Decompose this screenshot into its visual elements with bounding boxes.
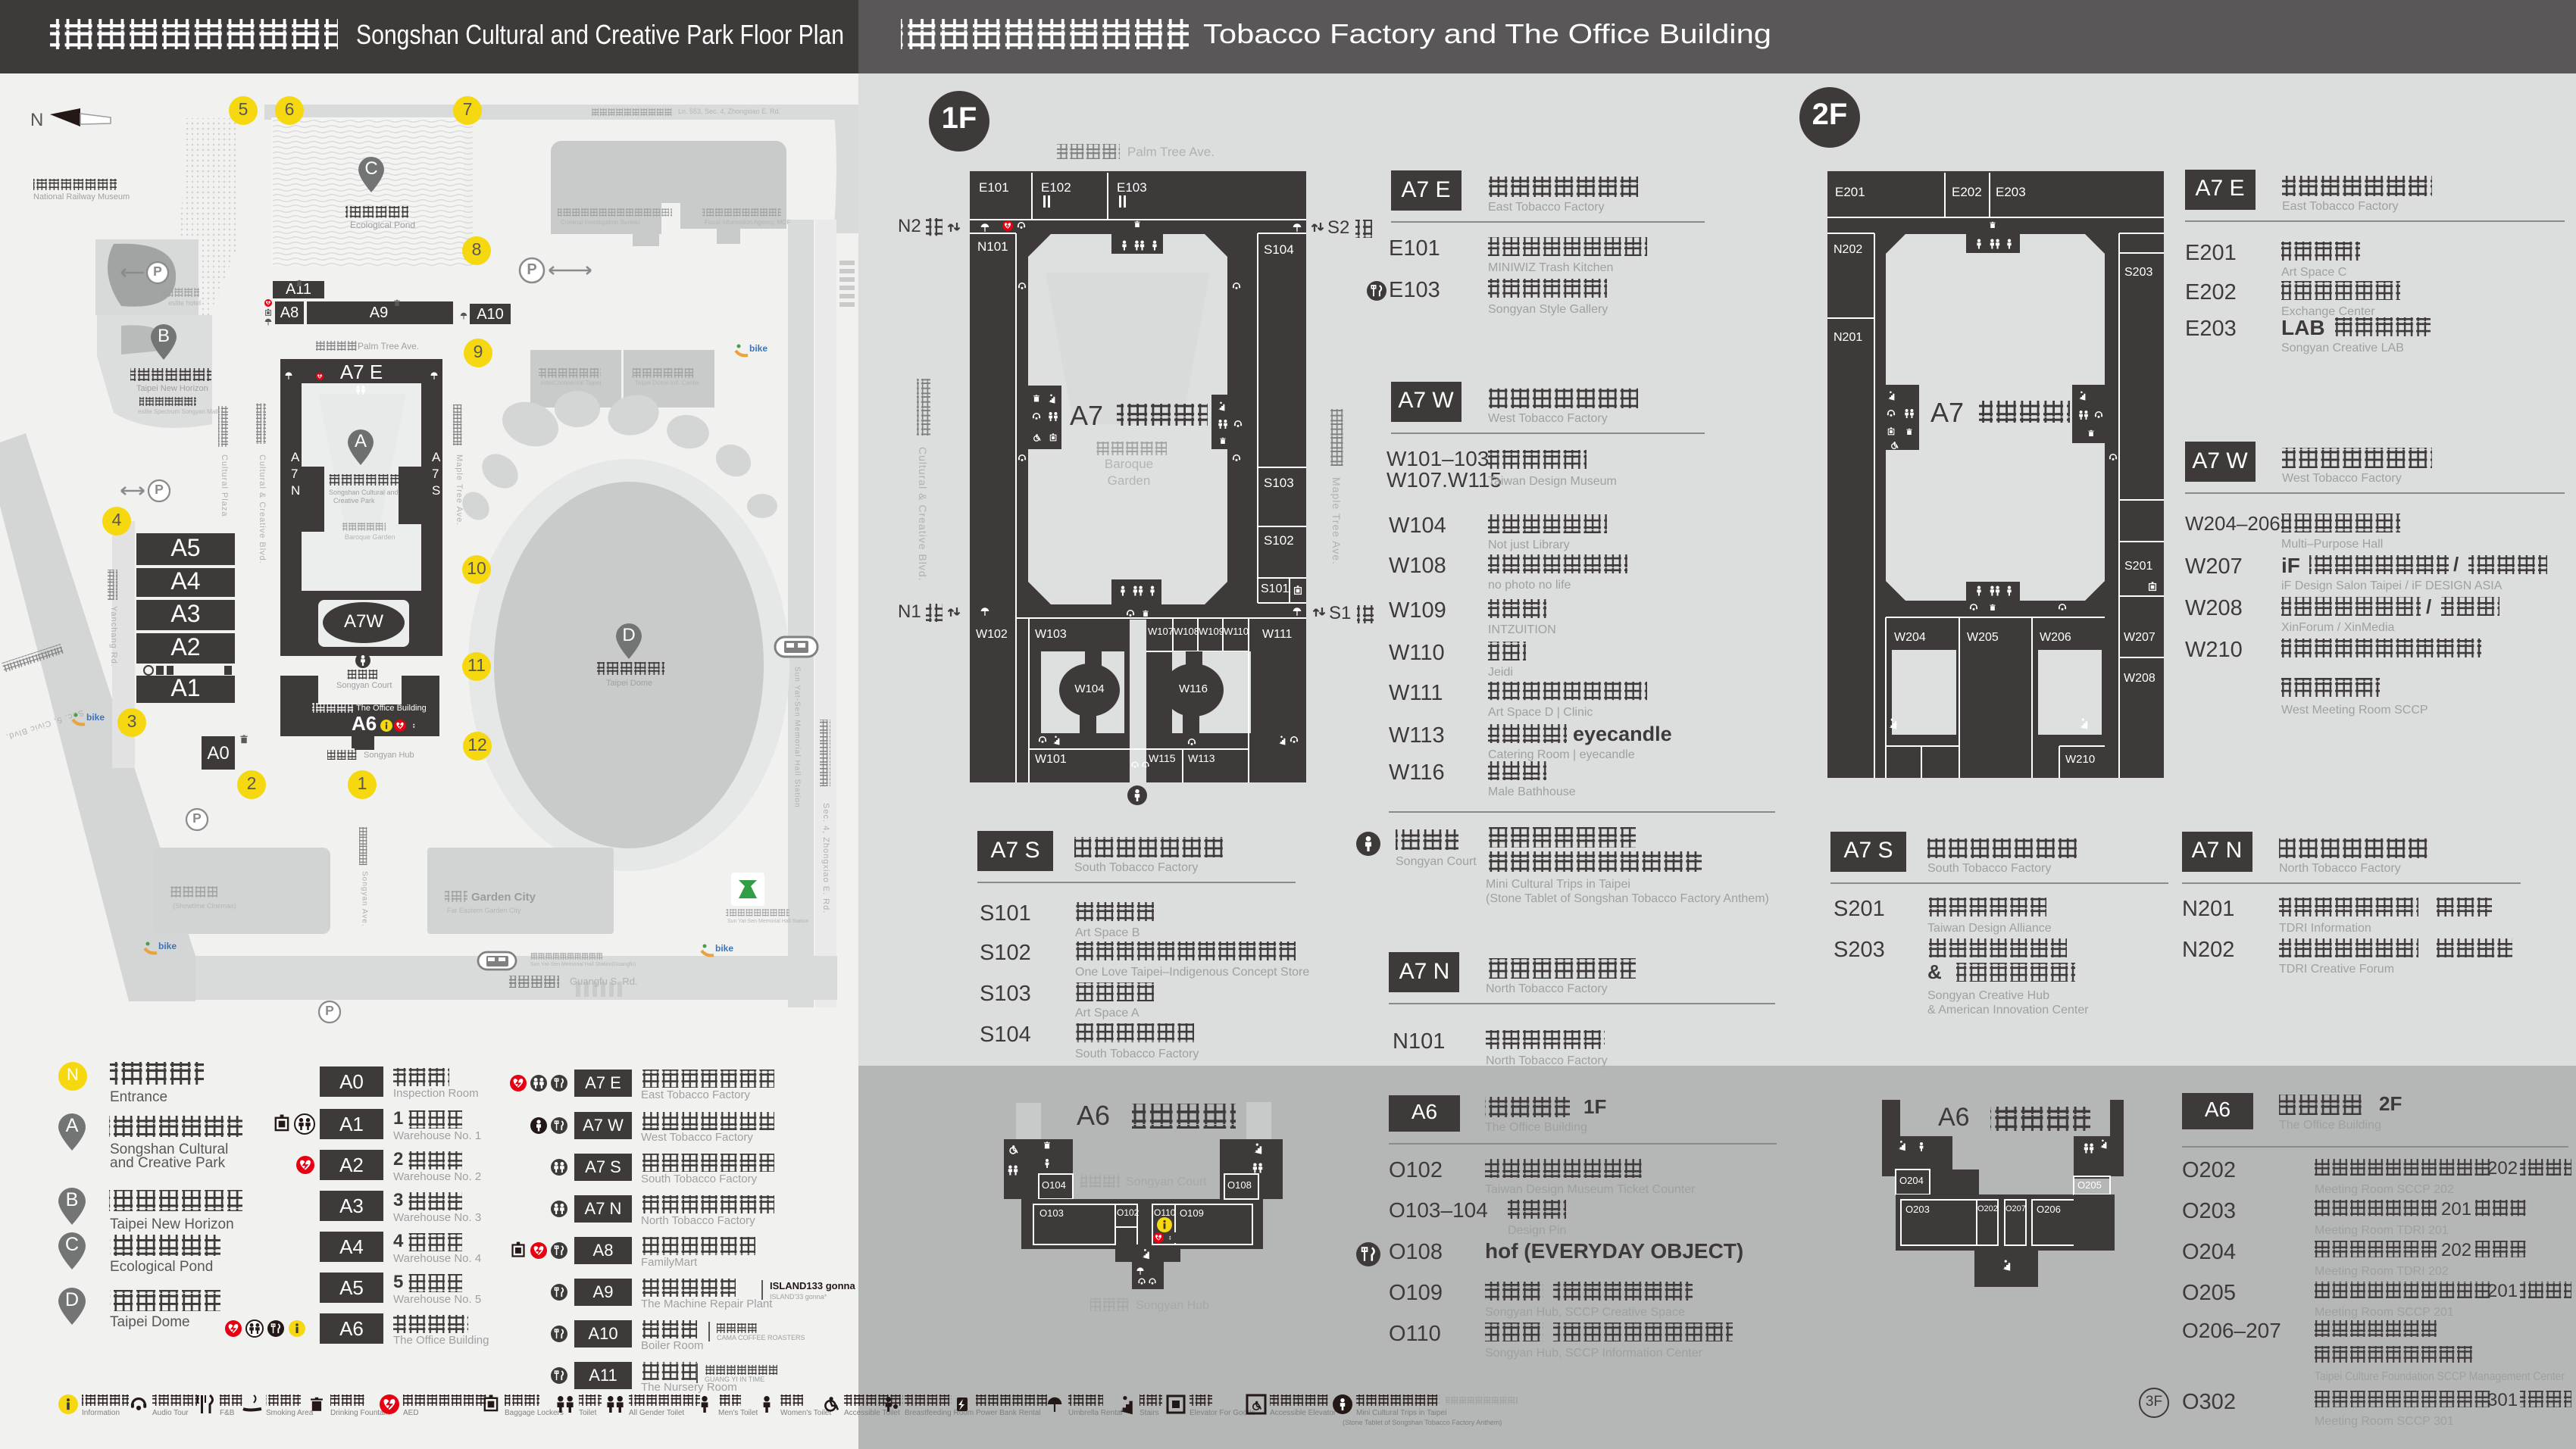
svg-text:E201: E201 [2185,241,2237,265]
svg-text:W113: W113 [1389,723,1445,748]
svg-text:7: 7 [432,467,439,481]
svg-text:O108: O108 [1389,1240,1443,1264]
svg-text:hof (EVERYDAY OBJECT): hof (EVERYDAY OBJECT) [1485,1239,1743,1263]
svg-text:N: N [291,483,300,498]
svg-text:W204: W204 [1894,631,1926,644]
svg-text:InterContinental Taipei: InterContinental Taipei [541,379,602,386]
svg-text:Meeting Room SCCP 202: Meeting Room SCCP 202 [2315,1183,2454,1196]
svg-text:A5: A5 [339,1276,364,1299]
svg-text:Cultural & Creative Blvd.: Cultural & Creative Blvd. [258,454,267,564]
svg-text:East Tobacco Factory: East Tobacco Factory [641,1088,750,1101]
svg-text:(Showtime Cinemas): (Showtime Cinemas) [173,902,236,910]
svg-text:Taiwan Design Alliance: Taiwan Design Alliance [1927,922,2052,935]
svg-text:A1: A1 [339,1113,364,1135]
svg-text:E101: E101 [1389,236,1440,261]
svg-text:3F: 3F [2146,1394,2162,1410]
svg-text:A7 N: A7 N [585,1199,622,1218]
svg-text:O109: O109 [1180,1207,1204,1219]
svg-text:6: 6 [285,99,295,119]
svg-text:Sun Yat-Sen Memorial Hall Stat: Sun Yat-Sen Memorial Hall Station [793,667,802,808]
svg-text:S1: S1 [1329,603,1351,623]
svg-text:W210: W210 [2185,638,2243,662]
svg-text:8: 8 [472,239,482,259]
svg-text:Palm Tree Ave.: Palm Tree Ave. [1127,145,1215,159]
svg-text:Cultural Plaza: Cultural Plaza [220,454,229,517]
svg-text:10: 10 [467,558,486,578]
svg-text:W115: W115 [1149,752,1176,764]
svg-text:Men's Toilet: Men's Toilet [718,1409,758,1417]
svg-text:West Meeting Room SCCP: West Meeting Room SCCP [2281,704,2428,717]
svg-text:Mini Cultural Trips in Taipei: Mini Cultural Trips in Taipei [1356,1409,1446,1417]
svg-text:Taiwan Design Museum: Taiwan Design Museum [1488,475,1617,488]
svg-text:A4: A4 [170,567,200,595]
svg-text:E101: E101 [979,180,1009,195]
svg-text:W111: W111 [1389,681,1443,705]
svg-text:5: 5 [239,99,249,119]
svg-text:Women's Toilet: Women's Toilet [780,1409,831,1417]
svg-text:Sun Yat-Sen Memorial Hall Stat: Sun Yat-Sen Memorial Hall Station(Guangf… [530,962,636,967]
svg-text:S103: S103 [980,982,1031,1006]
svg-text:A7 W: A7 W [583,1116,624,1135]
svg-text:3: 3 [393,1190,403,1210]
svg-text:O205: O205 [2077,1179,2102,1191]
svg-text:A: A [355,431,367,451]
svg-text:N201: N201 [1834,331,1862,344]
svg-text:7: 7 [291,467,298,481]
svg-text:1F: 1F [942,101,977,135]
svg-text:9: 9 [474,342,483,361]
svg-text:North Tobacco Factory: North Tobacco Factory [641,1214,755,1227]
svg-text:S203: S203 [2124,266,2152,279]
svg-text:A7 S: A7 S [990,838,1039,863]
svg-text:A0: A0 [207,743,229,764]
svg-text:Ln. 553, Sec. 4, Zhongxiao E.: Ln. 553, Sec. 4, Zhongxiao E. Rd. [678,108,780,115]
svg-text:202: 202 [2441,1240,2471,1260]
svg-text:S104: S104 [1264,242,1294,257]
svg-text:S104: S104 [980,1023,1031,1047]
svg-text:A0: A0 [339,1070,364,1093]
svg-text:Art Space B: Art Space B [1075,926,1140,939]
svg-text:S2: S2 [1327,217,1349,238]
svg-text:D: D [622,625,635,645]
svg-text:1F: 1F [1583,1095,1606,1118]
svg-text:S101: S101 [1261,582,1289,595]
svg-text:Sec. 4, Zhongxiao E. Rd.: Sec. 4, Zhongxiao E. Rd. [821,803,830,913]
svg-text:Songyan Court: Songyan Court [336,681,392,690]
svg-text:South Tobacco Factory: South Tobacco Factory [641,1173,758,1185]
svg-text:Maple Tree Ave.: Maple Tree Ave. [1330,477,1343,565]
svg-text:bike: bike [158,941,177,951]
svg-text:F&B: F&B [220,1409,235,1417]
svg-text:1: 1 [358,773,367,793]
svg-text:W208: W208 [2185,596,2243,620]
svg-text:W107: W107 [1148,626,1174,637]
svg-text:Taipei Dome: Taipei Dome [110,1314,190,1330]
svg-text:A9: A9 [593,1282,614,1301]
svg-text:201: 201 [2487,1281,2518,1301]
svg-text:A3: A3 [170,600,200,627]
svg-text:ISLAND'33 gonna*: ISLAND'33 gonna* [770,1293,827,1301]
svg-text:12: 12 [467,735,487,754]
svg-text:O204: O204 [1899,1175,1924,1186]
svg-text:A6: A6 [339,1317,364,1340]
svg-text:W207: W207 [2185,554,2243,579]
svg-text:W109: W109 [1389,598,1446,623]
svg-text:Taipei Culture Foundation SCCP: Taipei Culture Foundation SCCP Managemen… [2315,1370,2565,1383]
svg-text:Art Space C: Art Space C [2281,266,2346,279]
svg-text:Ecological Pond: Ecological Pond [110,1259,213,1275]
svg-text:Smoking Area: Smoking Area [266,1409,314,1417]
svg-text:Songyan Hub: Songyan Hub [364,751,414,760]
svg-text:East Tobacco Factory: East Tobacco Factory [1488,201,1605,214]
svg-text:Toilet: Toilet [579,1409,597,1417]
svg-text:E203: E203 [1996,185,2026,199]
svg-text:LAB: LAB [2281,316,2325,339]
svg-text:N1: N1 [898,601,921,622]
svg-text:W103: W103 [1035,628,1067,641]
svg-text:Power Bank Rental: Power Bank Rental [976,1409,1041,1417]
svg-text:202: 202 [2487,1158,2518,1179]
svg-text:W210: W210 [2065,753,2095,766]
svg-text:Tobacco Factory and The Office: Tobacco Factory and The Office Building [1203,18,1771,49]
svg-text:O103–104: O103–104 [1389,1198,1488,1222]
svg-text:W205: W205 [1967,631,1999,644]
svg-text:W116: W116 [1389,760,1445,785]
svg-text:Jeidi: Jeidi [1488,666,1513,679]
svg-text:Songyan Court: Songyan Court [1396,855,1477,868]
svg-text:A7 W: A7 W [2192,448,2248,473]
svg-text:ISLAND133 gonna: ISLAND133 gonna [770,1280,855,1291]
svg-text:O204: O204 [2182,1240,2236,1264]
svg-text:Art Space A: Art Space A [1075,1007,1140,1020]
svg-text:/: / [2453,553,2459,576]
svg-text:Warehouse No. 1: Warehouse No. 1 [393,1129,481,1142]
svg-text:O202: O202 [2182,1158,2236,1182]
svg-text:O110: O110 [1389,1322,1441,1346]
svg-text:A11: A11 [589,1366,617,1385]
svg-text:O302: O302 [2182,1390,2236,1414]
svg-text:Mini Cultural Trips in Taipei: Mini Cultural Trips in Taipei [1486,878,1630,891]
svg-text:2F: 2F [2379,1092,2402,1115]
svg-text:eslite Spectrum Songyan Mall: eslite Spectrum Songyan Mall [138,408,218,415]
svg-text:A7 N: A7 N [2192,838,2243,863]
svg-text:MINIWIZ Trash Kitchen: MINIWIZ Trash Kitchen [1488,261,1613,274]
svg-text:O205: O205 [2182,1281,2236,1305]
svg-text:/: / [2426,595,2431,618]
svg-text:Garden: Garden [1108,473,1151,488]
svg-text:W108: W108 [1389,554,1446,578]
svg-text:INTZUITION: INTZUITION [1488,623,1556,636]
svg-text:Warehouse No. 2: Warehouse No. 2 [393,1170,481,1183]
svg-text:N202: N202 [2182,938,2234,962]
svg-text:N: N [67,1065,79,1084]
svg-text:Songyan Hub, SCCP Information: Songyan Hub, SCCP Information Center [1485,1347,1703,1360]
svg-text:The Machine Repair Plant: The Machine Repair Plant [641,1298,773,1310]
svg-text:Yanchang Rd.: Yanchang Rd. [109,606,118,667]
svg-text:S102: S102 [980,941,1031,965]
svg-text:Umbrella Rental: Umbrella Rental [1068,1409,1123,1417]
svg-text:Not just Library: Not just Library [1488,539,1570,551]
svg-text:O203: O203 [2182,1199,2236,1223]
svg-text:West Tobacco Factory: West Tobacco Factory [641,1131,753,1144]
svg-text:S201: S201 [1834,897,1885,921]
svg-text:W101–103: W101–103 [1386,447,1489,470]
svg-text:Creative Park: Creative Park [333,497,375,504]
svg-text:O203: O203 [1905,1204,1930,1215]
svg-text:no photo no life: no photo no life [1488,579,1571,592]
svg-text:North Tobacco Factory: North Tobacco Factory [1486,982,1608,995]
svg-text:A7 E: A7 E [2195,176,2244,201]
svg-text:The Office Building: The Office Building [1485,1121,1587,1134]
svg-text:Audio Tour: Audio Tour [152,1409,189,1417]
svg-text:(Stone Tablet of Songshan Toba: (Stone Tablet of Songshan Tobacco Factor… [1343,1419,1502,1426]
svg-text:Songyan Style Gallery: Songyan Style Gallery [1488,303,1608,316]
svg-text:All Gender Toilet: All Gender Toilet [629,1409,684,1417]
svg-text:A7 S: A7 S [1843,838,1893,863]
svg-text:A7: A7 [1930,397,1964,428]
svg-text:Maple Tree Ave.: Maple Tree Ave. [455,454,464,526]
svg-text:TDRI Creative Forum: TDRI Creative Forum [2279,963,2394,976]
svg-text:AED: AED [403,1409,419,1417]
svg-text:Ecological Pond: Ecological Pond [350,220,415,230]
svg-text:Meeting Room SCCP 301: Meeting Room SCCP 301 [2315,1415,2454,1428]
svg-text:East Tobacco Factory: East Tobacco Factory [2282,200,2399,213]
svg-text:W110: W110 [1224,626,1249,637]
svg-text:W204–206: W204–206 [2185,512,2281,535]
svg-text:S203: S203 [1834,938,1885,962]
svg-text:Taipei Dome: Taipei Dome [606,679,652,688]
svg-text:P: P [325,1003,334,1018]
svg-text:S103: S103 [1264,476,1294,490]
svg-text:Entrance: Entrance [110,1089,167,1105]
svg-text:E202: E202 [1952,185,1982,199]
svg-text:Warehouse No. 3: Warehouse No. 3 [393,1211,481,1224]
svg-text:One Love Taipei–Indigenous Con: One Love Taipei–Indigenous Concept Store [1075,966,1309,979]
svg-text:301: 301 [2487,1390,2518,1410]
svg-text:Criminal Investigation Bureau: Criminal Investigation Bureau [561,219,640,226]
svg-text:Meeting Room TDRI 202: Meeting Room TDRI 202 [2315,1265,2449,1278]
svg-text:Taipei New Horizon: Taipei New Horizon [110,1216,234,1232]
svg-text:W208: W208 [2124,672,2156,685]
svg-text:C: C [364,158,377,179]
svg-text:Songyan Creative Hub: Songyan Creative Hub [1927,989,2049,1002]
svg-text:A2: A2 [339,1154,364,1176]
svg-text:Boiler Room: Boiler Room [641,1339,704,1352]
svg-text:S101: S101 [980,901,1031,926]
svg-text:W206: W206 [2040,631,2071,644]
svg-text:A7 S: A7 S [585,1157,621,1176]
svg-text:National Railway Museum: National Railway Museum [33,192,130,201]
svg-text:W104: W104 [1389,514,1446,538]
svg-text:North Tobacco Factory: North Tobacco Factory [2279,862,2401,875]
svg-text:W110: W110 [1389,641,1445,665]
svg-text:A9: A9 [370,304,388,321]
svg-text:Elevator For Goods: Elevator For Goods [1190,1409,1255,1417]
svg-text:iF: iF [2281,554,2300,577]
svg-text:A: A [291,450,300,464]
svg-text:Songyan Ave.: Songyan Ave. [361,871,369,927]
svg-text:A: A [432,450,441,464]
svg-text:Taiwan Design Museum Ticket Co: Taiwan Design Museum Ticket Counter [1485,1183,1696,1196]
svg-text:4: 4 [112,510,122,529]
svg-text:O110: O110 [1154,1207,1176,1218]
svg-text:Art Space D | Clinic: Art Space D | Clinic [1488,706,1593,719]
svg-text:E202: E202 [2185,280,2237,304]
svg-text:P: P [153,264,162,279]
svg-text:N101: N101 [1393,1029,1445,1054]
svg-text:A7: A7 [1070,400,1103,431]
svg-text:iF Design Salon Taipei / iF DE: iF Design Salon Taipei / iF DESIGN ASIA [2281,579,2503,592]
svg-text:Garden City: Garden City [471,891,536,904]
svg-text:C: C [65,1234,79,1255]
svg-text:Drinking Fountain: Drinking Fountain [330,1409,389,1417]
svg-text:Songyan Hub, SCCP Creative Spa: Songyan Hub, SCCP Creative Space [1485,1306,1685,1319]
svg-text:N101: N101 [977,239,1008,254]
svg-text:Warehouse No. 5: Warehouse No. 5 [393,1293,481,1306]
svg-text:E203: E203 [2185,317,2237,341]
svg-text:W109: W109 [1199,626,1224,637]
svg-text:W207: W207 [2124,631,2156,644]
svg-text:7: 7 [463,99,473,119]
svg-text:A7 E: A7 E [1401,177,1450,202]
svg-text:11: 11 [467,655,486,675]
svg-text:&: & [1927,960,1942,983]
svg-text:A8: A8 [593,1241,614,1260]
svg-text:bike: bike [749,343,767,354]
svg-text:CAMA COFFEE ROASTERS: CAMA COFFEE ROASTERS [717,1334,805,1341]
svg-text:W111: W111 [1262,628,1293,641]
svg-text:FamilyMart: FamilyMart [641,1256,698,1269]
svg-text:E103: E103 [1389,278,1440,302]
svg-text:XinForum / XinMedia: XinForum / XinMedia [2281,621,2394,634]
svg-text:S102: S102 [1264,533,1294,548]
svg-text:Taipei New Horizon: Taipei New Horizon [136,384,208,393]
svg-text:Cultural & Creative Blvd.: Cultural & Creative Blvd. [917,447,929,582]
svg-text:Stairs: Stairs [1140,1409,1159,1417]
svg-text:bike: bike [715,943,733,954]
svg-text:W116: W116 [1179,682,1208,695]
svg-text:N2: N2 [898,216,921,236]
svg-text:P: P [192,810,202,826]
svg-text:P: P [527,261,536,278]
svg-text:A2: A2 [170,633,200,660]
svg-text:A: A [66,1115,79,1136]
svg-text:West Tobacco Factory: West Tobacco Factory [2282,472,2402,485]
svg-text:Songyan Creative LAB: Songyan Creative LAB [2281,342,2404,354]
svg-text:A10: A10 [477,306,504,323]
svg-text:Songshan Cultural and: Songshan Cultural and [329,489,399,496]
svg-text:O206–207: O206–207 [2182,1319,2281,1342]
svg-text:201: 201 [2441,1199,2471,1219]
svg-text:A7 N: A7 N [1399,959,1450,984]
svg-text:Inspection Room: Inspection Room [393,1087,479,1100]
svg-text:GUANG YI IN TIME: GUANG YI IN TIME [705,1376,764,1383]
svg-text:W107.W115: W107.W115 [1386,468,1502,492]
svg-text:A4: A4 [339,1235,364,1258]
svg-text:Songyan Court: Songyan Court [1126,1176,1207,1188]
svg-text:O102: O102 [1389,1158,1443,1182]
svg-text:Sun Yat-Sen Memorial Hall Stat: Sun Yat-Sen Memorial Hall Station [727,919,809,924]
svg-text:P: P [155,482,164,497]
svg-text:A7 E: A7 E [585,1073,621,1092]
svg-text:S201: S201 [2124,560,2152,573]
svg-text:A5: A5 [170,534,200,561]
svg-text:The Office Building: The Office Building [2279,1119,2381,1132]
svg-text:A6: A6 [1077,1100,1110,1131]
svg-text:Multi–Purpose Hall: Multi–Purpose Hall [2281,538,2383,551]
svg-text:bike: bike [86,712,105,723]
svg-text:B: B [158,326,170,346]
svg-text:Guangfu S. Rd.: Guangfu S. Rd. [570,976,638,987]
svg-text:Accessible Elevator: Accessible Elevator [1270,1409,1336,1417]
svg-text:4: 4 [393,1231,404,1251]
svg-text:Design Pin: Design Pin [1508,1224,1566,1237]
svg-text:O202: O202 [1977,1204,1998,1213]
svg-text:South Tobacco Factory: South Tobacco Factory [1075,1048,1199,1060]
svg-text:D: D [65,1289,79,1310]
svg-text:TDRI Information: TDRI Information [2279,922,2371,935]
svg-text:Information: Information [82,1409,120,1417]
svg-text:5: 5 [393,1272,403,1292]
svg-text:O103: O103 [1039,1207,1064,1219]
svg-text:Songyan Hub: Songyan Hub [1136,1299,1209,1312]
svg-text:O108: O108 [1227,1179,1252,1191]
svg-text:The Office Building: The Office Building [393,1334,489,1347]
svg-text:A8: A8 [280,304,299,321]
svg-text:B: B [66,1189,79,1210]
svg-text:eyecandle: eyecandle [1573,723,1672,745]
svg-text:O109: O109 [1389,1281,1443,1305]
svg-text:A6: A6 [2205,1098,2231,1121]
svg-text:A7 W: A7 W [1398,388,1454,413]
svg-text:2F: 2F [1812,98,1848,131]
svg-text:& American Innovation Center: & American Innovation Center [1927,1004,2089,1016]
svg-text:Taipei Dome Intl. Center: Taipei Dome Intl. Center [635,379,700,386]
svg-text:E201: E201 [1835,185,1865,199]
svg-text:N202: N202 [1834,243,1862,256]
svg-text:2: 2 [247,773,257,793]
svg-text:N201: N201 [2182,897,2234,921]
svg-text:2: 2 [393,1149,403,1170]
svg-text:Male Bathhouse: Male Bathhouse [1488,785,1576,798]
svg-text:eslite hotel: eslite hotel [168,299,201,307]
svg-text:3: 3 [127,711,137,731]
svg-text:W108: W108 [1174,626,1199,637]
svg-text:A1: A1 [170,674,200,701]
svg-text:Warehouse No. 4: Warehouse No. 4 [393,1252,481,1265]
svg-text:1: 1 [393,1108,403,1129]
svg-text:S: S [432,483,440,498]
svg-text:E102: E102 [1041,180,1071,195]
svg-text:E103: E103 [1117,180,1147,195]
svg-text:W104: W104 [1074,682,1104,695]
svg-text:A6: A6 [1938,1103,1970,1132]
svg-text:Baroque Garden: Baroque Garden [345,533,395,541]
svg-text:O206: O206 [2037,1204,2061,1215]
svg-text:Baggage Lockers: Baggage Lockers [505,1409,564,1417]
svg-text:A7W: A7W [344,611,383,632]
svg-text:A6: A6 [1411,1100,1437,1123]
svg-text:Far Eastern Garden City: Far Eastern Garden City [447,907,521,914]
svg-text:A3: A3 [339,1194,364,1217]
svg-text:O102: O102 [1117,1207,1140,1218]
svg-text:and Creative Park: and Creative Park [110,1155,226,1171]
svg-text:Baroque: Baroque [1105,457,1153,471]
svg-text:South Tobacco Factory: South Tobacco Factory [1927,862,2051,875]
svg-text:(Stone Tablet of Songshan Toba: (Stone Tablet of Songshan Tobacco Factor… [1486,892,1769,905]
svg-text:Catering Room | eyecandle: Catering Room | eyecandle [1488,748,1635,761]
svg-text:South Tobacco Factory: South Tobacco Factory [1074,861,1198,874]
